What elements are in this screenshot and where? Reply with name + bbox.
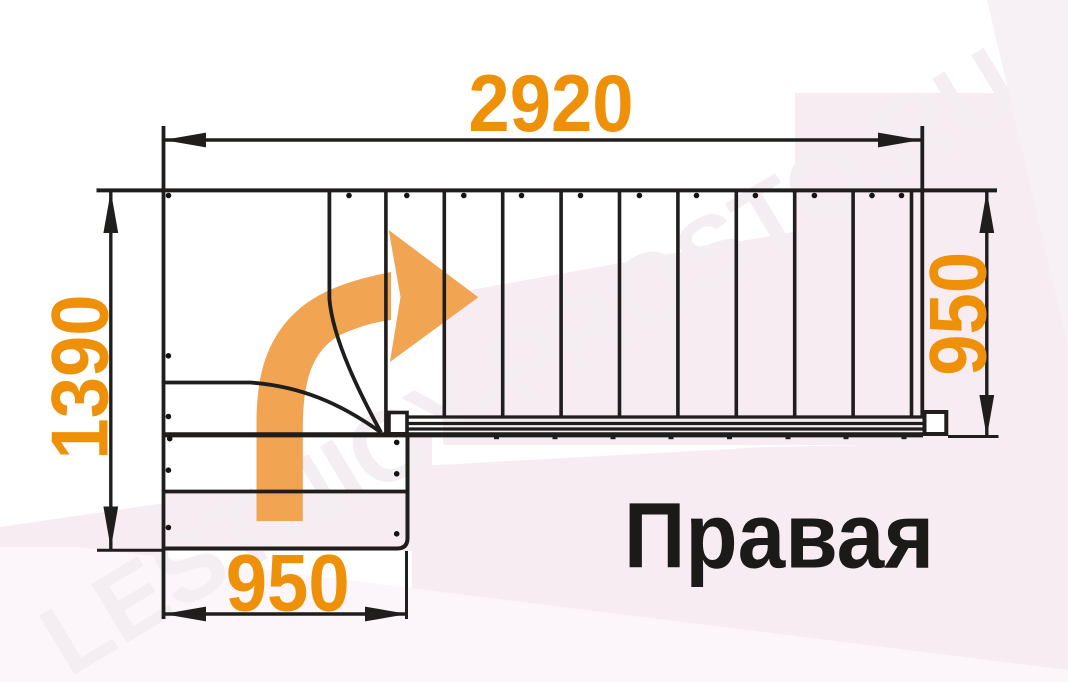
svg-text:2920: 2920 xyxy=(468,59,633,149)
svg-text:950: 950 xyxy=(913,252,1003,376)
svg-text:Правая: Правая xyxy=(624,483,934,587)
svg-text:950: 950 xyxy=(226,538,350,628)
svg-text:1390: 1390 xyxy=(36,294,126,459)
